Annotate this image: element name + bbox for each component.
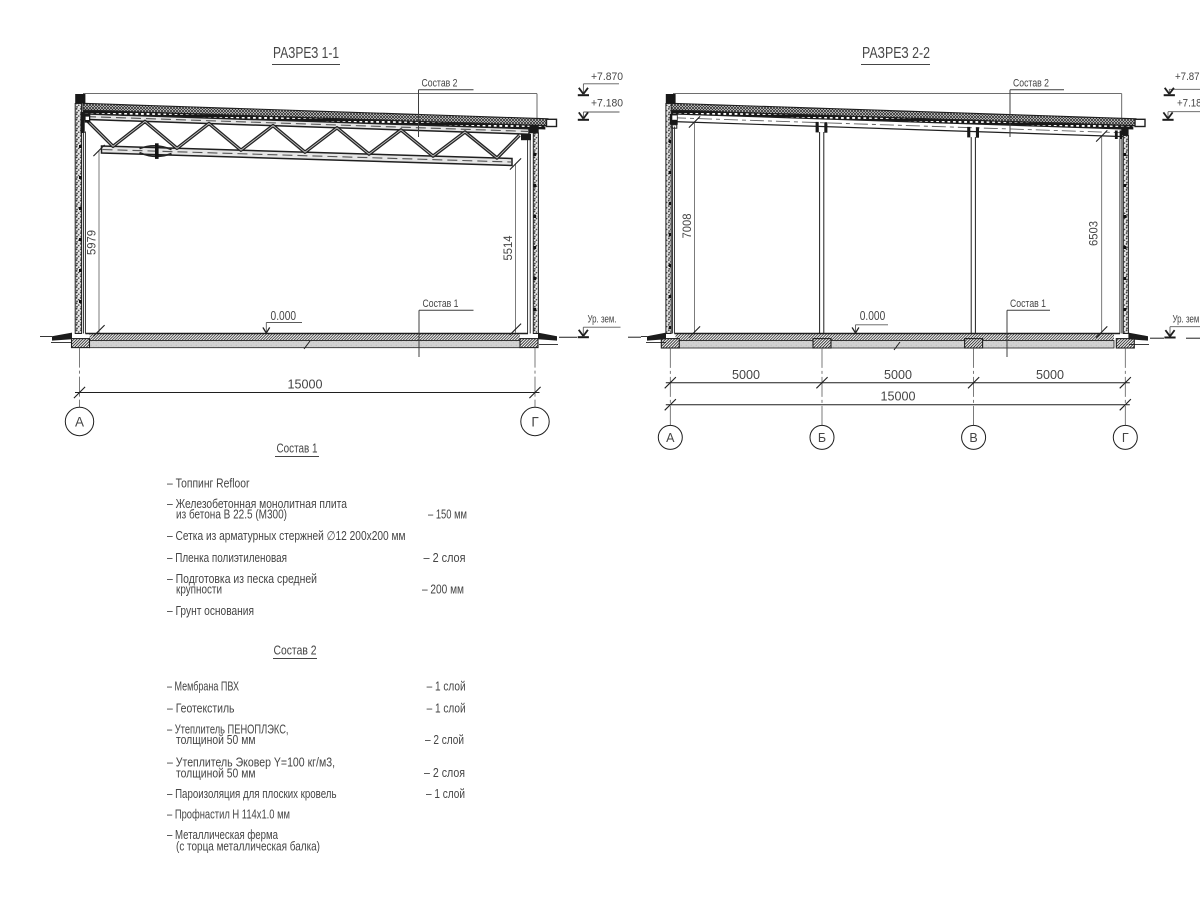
svg-text:Состав 1: Состав 1 [277,442,318,456]
svg-text:толщиной 50 мм: толщиной 50 мм [176,767,256,781]
svg-text:5979: 5979 [85,230,99,255]
svg-text:Состав 2: Состав 2 [422,78,458,90]
svg-text:6503: 6503 [1087,221,1101,246]
svg-text:– Грунт основания: – Грунт основания [167,604,254,618]
svg-text:Б: Б [818,431,826,445]
svg-text:– 2 слоя: – 2 слоя [424,551,466,565]
svg-text:Состав 2: Состав 2 [274,644,317,658]
svg-text:В: В [969,431,977,445]
svg-text:– Пленка полиэтиленовая: – Пленка полиэтиленовая [167,551,287,565]
svg-text:(с торца металлическая балка): (с торца металлическая балка) [176,840,320,854]
svg-text:– Пароизоляция для плоских кро: – Пароизоляция для плоских кровель [167,787,337,801]
svg-text:– 1 слой: – 1 слой [426,787,465,801]
svg-text:Состав 1: Состав 1 [1010,298,1046,310]
svg-text:Ур. зем.: Ур. зем. [588,313,617,325]
svg-text:Состав 2: Состав 2 [1013,78,1049,90]
svg-text:Г: Г [1122,431,1129,445]
svg-text:5000: 5000 [884,368,912,382]
svg-text:– 2 слоя: – 2 слоя [424,766,465,780]
svg-text:+7.870: +7.870 [1175,71,1200,83]
svg-text:А: А [666,431,675,445]
svg-text:крупности: крупности [176,583,222,597]
svg-text:Состав 1: Состав 1 [423,298,459,310]
svg-text:5000: 5000 [732,368,760,382]
svg-text:толщиной 50 мм: толщиной 50 мм [176,733,256,747]
svg-text:5514: 5514 [501,235,515,260]
svg-text:– Сетка из арматурных стержней: – Сетка из арматурных стержней ∅12 200х2… [167,529,406,543]
svg-text:0.000: 0.000 [271,309,297,323]
svg-text:15000: 15000 [288,378,323,392]
svg-text:– 200 мм: – 200 мм [422,583,464,597]
svg-text:15000: 15000 [881,390,916,404]
svg-text:+7.180: +7.180 [591,97,623,109]
svg-text:– Топпинг Refloor: – Топпинг Refloor [167,477,250,491]
svg-text:– 150 мм: – 150 мм [428,508,467,522]
svg-text:– Геотекстиль: – Геотекстиль [167,702,235,716]
svg-text:– 2 слой: – 2 слой [425,733,464,747]
svg-text:РАЗРЕЗ 2-2: РАЗРЕЗ 2-2 [862,45,930,62]
svg-text:– 1 слой: – 1 слой [427,680,466,694]
svg-text:– Мембрана ПВХ: – Мембрана ПВХ [167,680,239,694]
svg-text:7008: 7008 [680,213,694,238]
svg-text:А: А [75,415,84,430]
svg-text:Г: Г [531,415,539,430]
svg-text:Ур. зем.: Ур. зем. [1173,313,1200,325]
svg-text:из бетона В 22.5 (М300): из бетона В 22.5 (М300) [176,508,287,522]
svg-text:– Профнастил Н 114х1.0 мм: – Профнастил Н 114х1.0 мм [167,808,290,822]
svg-text:5000: 5000 [1036,368,1064,382]
svg-text:– 1 слой: – 1 слой [427,702,466,716]
svg-text:+7.870: +7.870 [591,71,623,83]
svg-text:0.000: 0.000 [860,309,886,323]
svg-text:РАЗРЕЗ 1-1: РАЗРЕЗ 1-1 [273,45,339,62]
svg-text:+7.180: +7.180 [1177,97,1200,109]
